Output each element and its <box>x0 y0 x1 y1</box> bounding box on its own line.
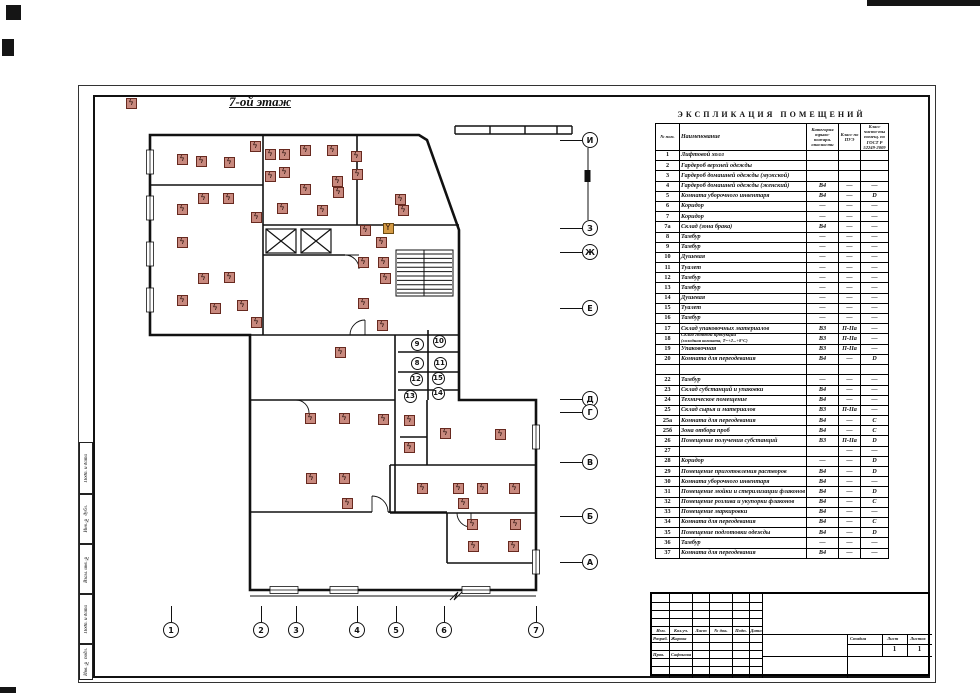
explication-row: 25аКомната для переодеванияВ4—С <box>656 416 889 426</box>
fire-device-marker: ϟ <box>251 317 262 328</box>
fire-device-marker: ϟ <box>508 541 519 552</box>
elevator-shafts <box>266 229 331 253</box>
fire-device-marker: ϟ <box>339 473 350 484</box>
axis-leader-line <box>560 308 582 309</box>
axis-leader-line <box>261 606 262 622</box>
sheet-label: Лист <box>887 636 898 641</box>
staircase <box>396 250 453 296</box>
axis-leader-line <box>560 399 582 400</box>
axis-bubble-5: 5 <box>388 622 404 638</box>
axis-bubble-Ж: Ж <box>582 244 598 260</box>
explication-row: 25бЗона отбора пробВ4—С <box>656 426 889 436</box>
explication-row: 3Гардероб домашней одежды (мужской) <box>656 171 889 181</box>
explication-row: 29Помещение приготовления растворовВ4—D <box>656 467 889 477</box>
room-number-11: 11 <box>434 357 447 370</box>
adjacent-wall-band <box>455 126 572 134</box>
fire-device-marker: ϟ <box>333 187 344 198</box>
fire-device-marker: ϟ <box>358 257 369 268</box>
sign-role: Пров. <box>653 652 664 657</box>
fire-device-marker: ϟ <box>380 273 391 284</box>
axis-bubble-7: 7 <box>528 622 544 638</box>
explication-row: 18Склад готовой продукции(холодная комна… <box>656 334 889 344</box>
axis-leader-line <box>560 516 582 517</box>
revision-header-cell: Подп. <box>733 628 749 633</box>
explication-title: ЭКСПЛИКАЦИЯ ПОМЕЩЕНИЙ <box>655 110 888 119</box>
revision-header-cell: Лист <box>693 628 709 633</box>
fire-device-marker: ϟ <box>352 169 363 180</box>
fire-device-marker: ϟ <box>468 541 479 552</box>
explication-row: 6Коридор——— <box>656 201 889 211</box>
revision-header-cell: Дата <box>750 628 762 633</box>
axis-bubble-З: З <box>582 220 598 236</box>
fire-device-marker: ϟ <box>224 157 235 168</box>
room-number-14: 14 <box>432 387 445 400</box>
title-block: Изм.Кол.уч.Лист№ док.Подп.Дата Разраб.Жа… <box>650 592 930 676</box>
axis-leader-line <box>560 252 582 253</box>
axis-leader-line <box>560 228 582 229</box>
explication-row: 11Туалет——— <box>656 263 889 273</box>
fire-device-marker: ϟ <box>265 149 276 160</box>
axis-leader-line <box>444 606 445 622</box>
fire-device-marker: ϟ <box>177 295 188 306</box>
explication-row: 12Тамбур——— <box>656 273 889 283</box>
fire-device-marker: ϟ <box>453 483 464 494</box>
room-number-9: 9 <box>411 338 424 351</box>
fire-device-marker: ϟ <box>250 141 261 152</box>
fire-device-marker: ϟ <box>223 193 234 204</box>
fire-device-marker: ϟ <box>378 257 389 268</box>
explication-row: 30Комната уборочного инвентаряВ4—— <box>656 477 889 487</box>
fire-device-marker: ϟ <box>237 300 248 311</box>
explication-row: 34Комната для переодеванияВ4—С <box>656 517 889 527</box>
axis-bubble-3: 3 <box>288 622 304 638</box>
axis-bubble-В: В <box>582 454 598 470</box>
special-device-marker: Y <box>383 223 394 234</box>
fire-device-marker: ϟ <box>300 145 311 156</box>
fire-device-marker: ϟ <box>477 483 488 494</box>
revision-header-cell: № док. <box>710 628 732 633</box>
fire-device-marker: ϟ <box>306 473 317 484</box>
axis-bubble-1: 1 <box>163 622 179 638</box>
fire-device-marker: ϟ <box>467 519 478 530</box>
fire-device-marker: ϟ <box>177 237 188 248</box>
fire-device-marker: ϟ <box>196 156 207 167</box>
fire-device-marker: ϟ <box>377 320 388 331</box>
explication-row: 7Коридор——— <box>656 212 889 222</box>
fire-device-marker: ϟ <box>177 154 188 165</box>
fire-device-marker: ϟ <box>277 203 288 214</box>
fire-device-marker: ϟ <box>198 193 209 204</box>
explication-row: 5Комната уборочного инвентаряВ4—D <box>656 191 889 201</box>
fire-device-marker: ϟ <box>279 167 290 178</box>
explication-row: 17Склад упаковочных материаловВ3П-IIа— <box>656 324 889 334</box>
col-header-clean: Класс чисто-ты помещ. по ГОСТ Р 52249-20… <box>861 124 889 151</box>
explication-row: 36Тамбур——— <box>656 538 889 548</box>
explication-row <box>656 365 889 375</box>
sheets-value: 1 <box>907 645 932 653</box>
dimension-line <box>585 148 591 220</box>
explication-row: 1Лифтовой холл <box>656 151 889 161</box>
col-header-category: Категория взрыво-пожарн. опасности <box>807 124 839 151</box>
explication-table: № пом. Наименование Категория взрыво-пож… <box>655 123 889 559</box>
axis-leader-line <box>171 606 172 622</box>
explication-row: 4Гардероб домашней одежды (женский)В4—— <box>656 181 889 191</box>
room-number-12: 12 <box>410 373 423 386</box>
fire-device-marker: ϟ <box>265 171 276 182</box>
drawing-sheet: Подп. и датаИнв. № дубл.Взам. инв. №Подп… <box>0 0 980 693</box>
fire-device-marker: ϟ <box>376 237 387 248</box>
fire-device-marker: ϟ <box>440 428 451 439</box>
fire-device-marker: ϟ <box>224 272 235 283</box>
axis-bubble-А: А <box>582 554 598 570</box>
explication-row: 22Тамбур——— <box>656 375 889 385</box>
revision-header-cell: Изм. <box>653 628 669 633</box>
fire-device-marker: ϟ <box>317 205 328 216</box>
explication-row: 13Тамбур——— <box>656 283 889 293</box>
room-number-8: 8 <box>411 357 424 370</box>
explication-row: 33Помещение маркировкиВ4—— <box>656 507 889 517</box>
fire-device-marker: ϟ <box>398 205 409 216</box>
axis-bubble-6: 6 <box>436 622 452 638</box>
fire-device-marker: ϟ <box>300 184 311 195</box>
axis-leader-line <box>560 140 582 141</box>
sheets-label: Листов <box>910 636 926 641</box>
stage-label: Стадия <box>850 636 866 641</box>
fire-device-marker: ϟ <box>210 303 221 314</box>
explication-row: 14Душевая——— <box>656 293 889 303</box>
explication-row: 7аСклад (зона брака)В4—— <box>656 222 889 232</box>
axis-bubble-Г: Г <box>582 404 598 420</box>
axis-leader-line <box>296 606 297 622</box>
fire-device-marker: ϟ <box>495 429 506 440</box>
axis-leader-line <box>396 606 397 622</box>
axis-bubble-Б: Б <box>582 508 598 524</box>
fire-device-marker: ϟ <box>360 225 371 236</box>
axis-bubble-2: 2 <box>253 622 269 638</box>
explication-row: 15Туалет——— <box>656 303 889 313</box>
axis-leader-line <box>560 462 582 463</box>
explication-body: 1Лифтовой холл2Гардероб верхней одежды3Г… <box>656 151 889 559</box>
explication-row: 25Склад сырья и материаловВ3П-IIа— <box>656 405 889 415</box>
fire-device-marker: ϟ <box>417 483 428 494</box>
fire-device-marker: ϟ <box>342 498 353 509</box>
fire-device-marker: ϟ <box>510 519 521 530</box>
fire-device-marker: ϟ <box>251 212 262 223</box>
explication-row: 19УпаковочнаяВ3П-IIа— <box>656 344 889 354</box>
revision-header-cell: Кол.уч. <box>670 628 692 633</box>
fire-device-marker: ϟ <box>198 273 209 284</box>
explication-row: 10Душевая——— <box>656 252 889 262</box>
axis-bubble-4: 4 <box>349 622 365 638</box>
explication-row: 26Помещение получения субстанцийВ3П-IIаD <box>656 436 889 446</box>
sign-role: Разраб. <box>653 636 668 641</box>
explication-row: 37Комната для переодеванияВ4—— <box>656 548 889 558</box>
explication-row: 24Техническое помещениеВ4—— <box>656 395 889 405</box>
sign-name: Жарова <box>671 636 686 641</box>
fire-device-marker: ϟ <box>509 483 520 494</box>
explication-row: 23Склад субстанций и упаковкиВ4—— <box>656 385 889 395</box>
explication-row: 16Тамбур——— <box>656 314 889 324</box>
fire-device-marker: ϟ <box>177 204 188 215</box>
fire-device-marker: ϟ <box>351 151 362 162</box>
col-header-num: № пом. <box>656 124 680 151</box>
explication-row: 32Помещение розлива и укупорки флаконовВ… <box>656 497 889 507</box>
fire-device-marker: ϟ <box>126 98 137 109</box>
explication-row: 20Комната для переодеванияВ4—D <box>656 354 889 364</box>
col-header-pue: Класс по ПУЭ <box>839 124 861 151</box>
axis-bubble-Е: Е <box>582 300 598 316</box>
axis-leader-line <box>560 412 582 413</box>
fire-device-marker: ϟ <box>378 414 389 425</box>
explication-row: 2Гардероб верхней одежды <box>656 161 889 171</box>
explication-row: 9Тамбур——— <box>656 242 889 252</box>
room-number-13: 13 <box>404 390 417 403</box>
fire-device-marker: ϟ <box>327 145 338 156</box>
fire-device-marker: ϟ <box>305 413 316 424</box>
fire-device-marker: ϟ <box>458 498 469 509</box>
explication-row: 28Коридор——D <box>656 456 889 466</box>
axis-leader-line <box>560 562 582 563</box>
fire-device-marker: ϟ <box>358 298 369 309</box>
room-number-10: 10 <box>433 335 446 348</box>
fire-device-marker: ϟ <box>339 413 350 424</box>
explication-row: 35Помещение подготовки одеждыВ4—D <box>656 528 889 538</box>
axis-leader-line <box>357 606 358 622</box>
floor-title: 7-ой этаж <box>205 94 315 110</box>
col-header-name: Наименование <box>680 124 807 151</box>
fire-device-marker: ϟ <box>404 415 415 426</box>
explication-row: 27—— <box>656 446 889 456</box>
room-number-15: 15 <box>432 372 445 385</box>
axis-bubble-И: И <box>582 132 598 148</box>
sheet-value: 1 <box>882 645 907 653</box>
fire-device-marker: ϟ <box>332 176 343 187</box>
fire-device-marker: ϟ <box>404 442 415 453</box>
sign-name: Сафонова <box>671 652 691 657</box>
windows <box>147 150 540 594</box>
explication-header-row: № пом. Наименование Категория взрыво-пож… <box>656 124 889 151</box>
explication-row: 31Помещение мойки и стерилизации флаконо… <box>656 487 889 497</box>
explication-row: 8Тамбур——— <box>656 232 889 242</box>
fire-device-marker: ϟ <box>279 149 290 160</box>
fire-device-marker: ϟ <box>395 194 406 205</box>
fire-device-marker: ϟ <box>335 347 346 358</box>
axis-leader-line <box>536 606 537 622</box>
